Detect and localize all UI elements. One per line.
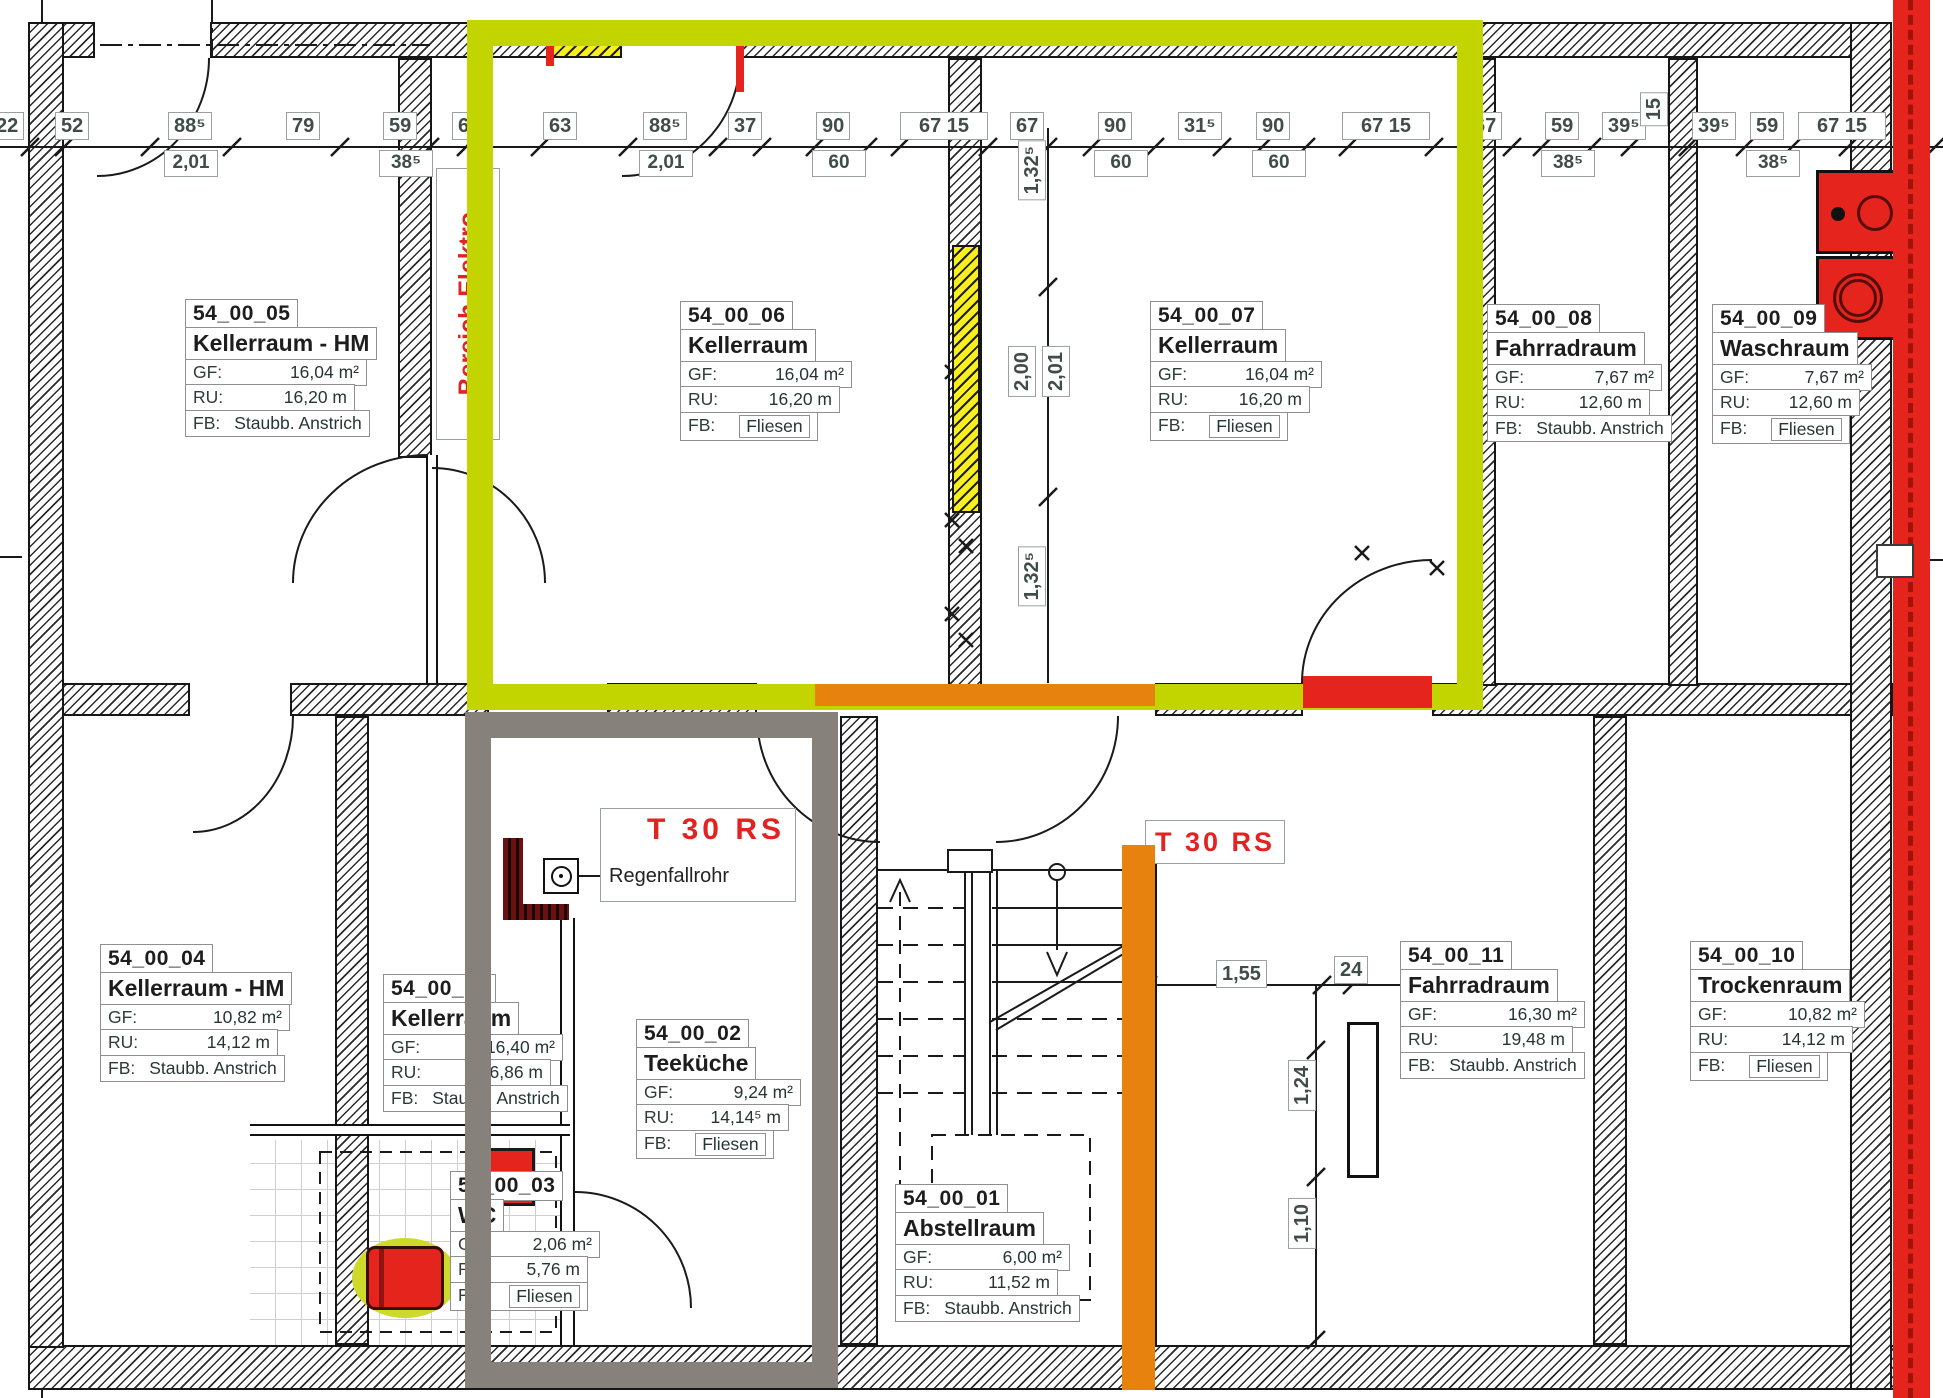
room-ru-row: RU: 14,12 m <box>1690 1026 1853 1053</box>
gf-label: GF: <box>108 1007 137 1028</box>
ru-value: 14,12 m <box>1782 1029 1845 1050</box>
dimension-value: 1,55 <box>1216 960 1267 988</box>
shaft-rect <box>1347 1022 1379 1178</box>
ru-label: RU: <box>193 387 223 408</box>
room-ru-row: RU: 12,60 m <box>1712 389 1860 416</box>
gf-label: GF: <box>1698 1004 1727 1025</box>
fb-label: FB: <box>1408 1055 1435 1076</box>
ru-label: RU: <box>903 1272 933 1293</box>
room-label-54_00_10: 54_00_10 Trockenraum GF: 10,82 m² RU: 14… <box>1690 942 1865 1081</box>
fb-value: Staubb. Anstrich <box>149 1058 276 1079</box>
room-fb-row: FB: Staubb. Anstrich <box>1487 415 1672 442</box>
ru-value: 12,60 m <box>1789 392 1852 413</box>
room-gf-row: GF: 7,67 m² <box>1712 364 1872 391</box>
room-name: Kellerraum - HM <box>100 972 292 1005</box>
room-fb-row: FB: Staubb. Anstrich <box>185 410 370 437</box>
fb-value: Fliesen <box>1771 418 1841 441</box>
room-gf-row: GF: 10,82 m² <box>100 1004 290 1031</box>
room-name: Fahrradraum <box>1400 969 1558 1002</box>
toilet-symbol <box>366 1246 444 1310</box>
ru-label: RU: <box>1408 1029 1438 1050</box>
fb-label: FB: <box>1720 418 1747 441</box>
fb-label: FB: <box>1495 418 1522 439</box>
gf-label: GF: <box>1720 367 1749 388</box>
room-label-54_00_08: 54_00_08 Fahrradraum GF: 7,67 m² RU: 12,… <box>1487 305 1672 442</box>
ru-label: RU: <box>1720 392 1750 413</box>
gray-highlight-box <box>465 712 838 1388</box>
fb-value: Staubb. Anstrich <box>944 1298 1071 1319</box>
orange-wall-segment <box>815 684 1155 706</box>
gf-label: GF: <box>193 362 222 383</box>
red-wall-stripe <box>1893 0 1930 1398</box>
room-label-54_00_01: 54_00_01 Abstellraum GF: 6,00 m² RU: 11,… <box>895 1185 1080 1322</box>
room-fb-row: FB: Staubb. Anstrich <box>1400 1052 1585 1079</box>
dimension-value: 39⁵ <box>1692 112 1736 140</box>
room-name: Kellerraum - HM <box>185 327 377 360</box>
room-ru-row: RU: 11,52 m <box>895 1269 1058 1296</box>
t30rs-text-2: T 30 RS <box>1155 827 1275 858</box>
room-id: 54_00_11 <box>1400 941 1512 971</box>
floor-plan: Bereich Elektro T 30 RS Regenfallrohr T … <box>0 0 1943 1398</box>
fb-label: FB: <box>108 1058 135 1079</box>
gf-label: GF: <box>1495 367 1524 388</box>
gf-value: 7,67 m² <box>1805 367 1864 388</box>
ru-label: RU: <box>1698 1029 1728 1050</box>
dimension-value: 38⁵ <box>1746 150 1800 177</box>
dimension-value: 38⁵ <box>379 150 433 177</box>
room-ru-row: RU: 16,20 m <box>185 384 355 411</box>
ru-value: 19,48 m <box>1502 1029 1565 1050</box>
dimension-value: 24 <box>1334 956 1368 984</box>
room-gf-row: GF: 16,30 m² <box>1400 1001 1585 1028</box>
room-gf-row: GF: 6,00 m² <box>895 1244 1070 1271</box>
room-fb-row: FB: Staubb. Anstrich <box>100 1055 285 1082</box>
orange-wall-stripe <box>1122 845 1155 1390</box>
fire-door-label-2: T 30 RS <box>1145 820 1285 864</box>
dimension-value: 15 <box>1640 92 1668 126</box>
dimension-value: 59 <box>1750 112 1784 140</box>
room-name: Waschraum <box>1712 332 1858 365</box>
dimension-value: 1,24 <box>1288 1060 1316 1111</box>
room-fb-row: FB: Fliesen <box>1712 415 1850 444</box>
room-gf-row: GF: 10,82 m² <box>1690 1001 1865 1028</box>
washer-symbol <box>1816 170 1896 254</box>
room-ru-row: RU: 19,48 m <box>1400 1026 1573 1053</box>
room-fb-row: FB: Staubb. Anstrich <box>895 1295 1080 1322</box>
gf-label: GF: <box>903 1247 932 1268</box>
ru-value: 11,52 m <box>988 1272 1050 1293</box>
dimension-value: 1,10 <box>1288 1198 1316 1249</box>
gf-value: 16,30 m² <box>1508 1004 1577 1025</box>
room-gf-row: GF: 16,04 m² <box>185 359 367 386</box>
dimension-value: 22 <box>0 112 24 140</box>
gf-value: 7,67 m² <box>1595 367 1654 388</box>
gf-label: GF: <box>391 1037 420 1058</box>
dimension-value: 2,01 <box>164 150 218 177</box>
room-id: 54_00_04 <box>100 944 213 974</box>
room-label-54_00_04: 54_00_04 Kellerraum - HM GF: 10,82 m² RU… <box>100 945 292 1082</box>
gf-value: 10,82 m² <box>213 1007 282 1028</box>
ru-value: 12,60 m <box>1579 392 1642 413</box>
dimension-value: 59 <box>1545 112 1579 140</box>
ru-value: 14,12 m <box>207 1032 270 1053</box>
fb-value: Staubb. Anstrich <box>1449 1055 1576 1076</box>
room-id: 54_00_05 <box>185 299 298 329</box>
room-id: 54_00_01 <box>895 1184 1008 1214</box>
gf-label: GF: <box>1408 1004 1437 1025</box>
fb-label: FB: <box>193 413 220 434</box>
red-wall-segment <box>1303 676 1432 708</box>
fb-value: Fliesen <box>1749 1055 1819 1078</box>
room-id: 54_00_10 <box>1690 941 1803 971</box>
room-name: Abstellraum <box>895 1212 1044 1245</box>
room-name: Fahrradraum <box>1487 332 1645 365</box>
section-marker <box>1876 544 1914 578</box>
dimension-value: 79 <box>286 112 320 140</box>
fb-label: FB: <box>903 1298 930 1319</box>
dimension-value: 52 <box>55 112 89 140</box>
room-gf-row: GF: 7,67 m² <box>1487 364 1662 391</box>
ru-label: RU: <box>1495 392 1525 413</box>
room-label-54_00_09: 54_00_09 Waschraum GF: 7,67 m² RU: 12,60… <box>1712 305 1872 444</box>
gf-value: 16,04 m² <box>290 362 359 383</box>
gf-value: 10,82 m² <box>1788 1004 1857 1025</box>
room-fb-row: FB: Fliesen <box>1690 1052 1828 1081</box>
dimension-value: 88⁵ <box>168 112 212 140</box>
room-label-54_00_05: 54_00_05 Kellerraum - HM GF: 16,04 m² RU… <box>185 300 377 437</box>
room-id: 54_00_09 <box>1712 304 1825 334</box>
gf-value: 6,00 m² <box>1003 1247 1062 1268</box>
room-name: Trockenraum <box>1690 969 1850 1002</box>
fb-label: FB: <box>1698 1055 1725 1078</box>
ru-value: 16,20 m <box>284 387 347 408</box>
room-id: 54_00_08 <box>1487 304 1600 334</box>
fb-label: FB: <box>391 1088 418 1109</box>
fb-value: Staubb. Anstrich <box>234 413 361 434</box>
ru-label: RU: <box>391 1062 421 1083</box>
room-label-54_00_11: 54_00_11 Fahrradraum GF: 16,30 m² RU: 19… <box>1400 942 1585 1079</box>
dimension-value: 38⁵ <box>1541 150 1595 177</box>
green-highlight-box <box>467 20 1483 710</box>
room-ru-row: RU: 12,60 m <box>1487 389 1650 416</box>
ru-label: RU: <box>108 1032 138 1053</box>
room-ru-row: RU: 14,12 m <box>100 1029 278 1056</box>
dimension-value: 67 15 <box>1798 112 1886 140</box>
dimension-value: 59 <box>383 112 417 140</box>
fb-value: Staubb. Anstrich <box>1536 418 1663 439</box>
